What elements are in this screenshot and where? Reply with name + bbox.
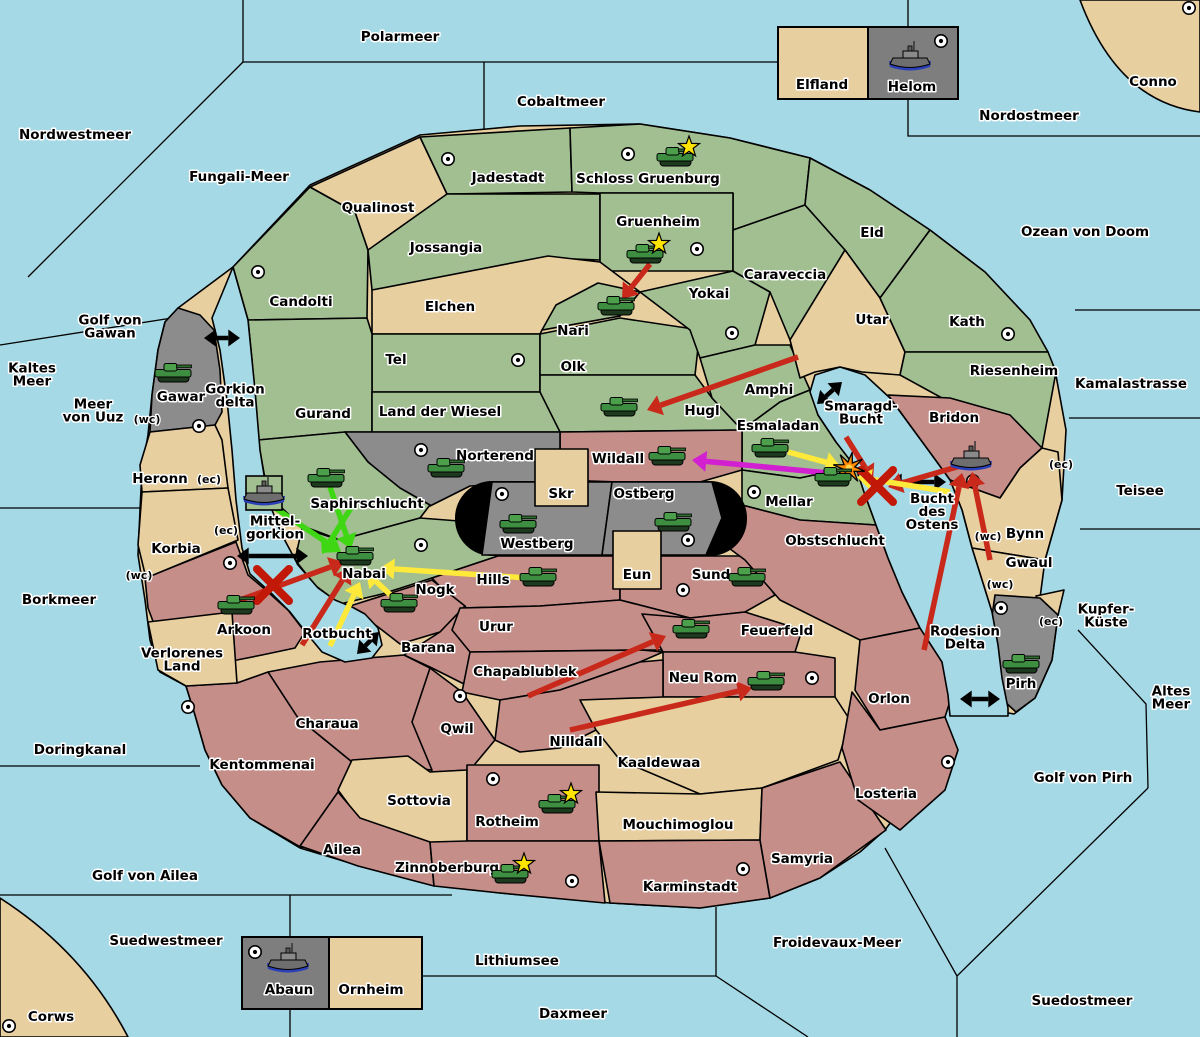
label-riesenheim: Riesenheim (970, 363, 1058, 379)
territory-mouchimoglou[interactable] (596, 788, 762, 841)
label-sea-4: Nordostmeer (979, 108, 1079, 124)
label-urur: Urur (479, 619, 513, 635)
label-norterend: Norterend (456, 448, 534, 464)
label-mellar: Mellar (765, 494, 813, 510)
label-gurand: Gurand (295, 406, 351, 422)
label-sea-6: Meer (13, 374, 52, 390)
label-sea-16: Lithiumsee (475, 953, 559, 969)
supply-center-dot (193, 420, 205, 432)
label-sea-9: delta (215, 395, 254, 411)
label-qwil: Qwil (440, 721, 473, 737)
label-sea-12: Doringkanal (34, 742, 126, 758)
label-sea-7: Gawan (84, 326, 135, 342)
supply-center-dot (512, 354, 524, 366)
label-wildall: Wildall (592, 451, 644, 467)
label-coast-tag: (wc) (975, 530, 1002, 543)
label-coast-tag: (wc) (987, 578, 1014, 591)
supply-center-dot (3, 1020, 15, 1032)
label-sea-14: Suedwestmeer (109, 933, 223, 949)
label-sea-25: Ostens (906, 517, 959, 533)
label-sea-26: Rotbucht (302, 626, 372, 642)
label-candolti: Candolti (269, 294, 332, 310)
supply-center-dot (442, 153, 454, 165)
supply-center-dot (806, 672, 818, 684)
label-ostberg: Ostberg (613, 486, 674, 502)
label-nilldall: Nilldall (549, 734, 602, 750)
supply-center-dot (682, 534, 694, 546)
supply-center-dot (748, 486, 760, 498)
supply-center-dot (566, 875, 578, 887)
label-coast-tag: (ec) (1049, 458, 1073, 471)
supply-center-dot (691, 243, 703, 255)
label-nabai: Nabai (342, 566, 386, 582)
label-eun: Eun (623, 567, 651, 583)
label-bridon: Bridon (929, 410, 979, 426)
label-sea-5: Ozean von Doom (1021, 224, 1149, 240)
label-jadestadt: Jadestadt (471, 170, 545, 186)
label-coast-tag: (ec) (197, 473, 221, 486)
supply-center-dot (737, 863, 749, 875)
supply-center-dot (677, 584, 689, 596)
supply-center-dot (252, 266, 264, 278)
label-abaun: Abaun (265, 982, 313, 998)
map-canvas: PolarmeerNordwestmeerFungali-MeerCobaltm… (0, 0, 1200, 1037)
label-amphi: Amphi (745, 382, 793, 398)
label-yokai: Yokai (688, 286, 730, 302)
label-elchen: Elchen (425, 299, 475, 315)
label-kaaldewaa: Kaaldewaa (618, 755, 701, 771)
label-kath: Kath (949, 314, 985, 330)
label-verlorenes-land: Land (164, 659, 201, 675)
label-sea-20: Meer (1152, 697, 1191, 713)
label-sottovia: Sottovia (387, 793, 451, 809)
label-pirh: Pirh (1006, 676, 1037, 692)
label-jossangia: Jossangia (409, 240, 483, 256)
supply-center-dot (182, 701, 194, 713)
label-sea-18: Suedostmeer (1032, 993, 1133, 1009)
label-nari: Nari (557, 323, 589, 339)
label-esmaladan: Esmaladan (737, 418, 820, 434)
label-sea-8: von Uuz (63, 410, 124, 426)
label-sea-24: Bucht (839, 412, 884, 428)
label-coast-tag: (ec) (1039, 615, 1063, 628)
territory-gruenheim[interactable] (600, 193, 733, 271)
label-neu-rom: Neu Rom (669, 670, 738, 686)
label-schloss-gruenburg: Schloss Gruenburg (576, 171, 720, 187)
label-corws: Corws (28, 1009, 74, 1025)
supply-center-dot (1183, 2, 1195, 14)
label-sea-15: Daxmeer (539, 1006, 607, 1022)
home-box-ornheim[interactable] (329, 937, 422, 1009)
game-map: PolarmeerNordwestmeerFungali-MeerCobaltm… (0, 0, 1200, 1037)
label-kentommenai: Kentommenai (209, 757, 314, 773)
supply-center-dot (415, 539, 427, 551)
supply-center-dot (942, 756, 954, 768)
label-mouchimoglou: Mouchimoglou (622, 817, 733, 833)
label-hills: Hills (476, 572, 509, 588)
label-skr: Skr (548, 486, 574, 502)
label-sea-13: Golf von Ailea (92, 868, 198, 884)
label-sea-19: Golf von Pirh (1034, 770, 1133, 786)
supply-center-dot (995, 602, 1007, 614)
label-charaua: Charaua (295, 716, 358, 732)
label-zinnoberburg: Zinnoberburg (395, 860, 499, 876)
label-nogk: Nogk (415, 582, 455, 598)
label-caraveccia: Caraveccia (744, 267, 826, 283)
label-eld: Eld (860, 225, 884, 241)
label-losteria: Losteria (855, 786, 917, 802)
label-chapablublek: Chapablublek (473, 664, 578, 680)
label-samyria: Samyria (771, 851, 833, 867)
label-rotheim: Rotheim (475, 814, 539, 830)
label-coast-tag: (wc) (126, 569, 153, 582)
label-conno: Conno (1129, 74, 1177, 90)
label-saphirschlucht: Saphirschlucht (310, 496, 424, 512)
label-ornheim: Ornheim (338, 982, 403, 998)
supply-center-dot (454, 690, 466, 702)
label-feuerfeld: Feuerfeld (741, 623, 814, 639)
label-tel: Tel (385, 352, 406, 368)
label-utar: Utar (855, 312, 889, 328)
label-sea-2: Fungali-Meer (189, 169, 289, 185)
label-arkoon: Arkoon (217, 622, 271, 638)
label-sea-22: Teisee (1116, 483, 1164, 499)
label-sea-21: Küste (1084, 615, 1127, 631)
label-heronn: Heronn (132, 471, 188, 487)
label-gruenheim: Gruenheim (616, 214, 700, 230)
label-barana: Barana (401, 640, 455, 656)
label-obstschlucht: Obstschlucht (785, 533, 885, 549)
supply-center-dot (224, 557, 236, 569)
label-sea-10: gorkion (246, 527, 304, 543)
label-westberg: Westberg (500, 536, 573, 552)
supply-center-dot (935, 35, 947, 47)
supply-center-dot (249, 946, 261, 958)
supply-center-dot (1002, 328, 1014, 340)
label-sea-3: Cobaltmeer (517, 94, 605, 110)
label-sea-17: Froidevaux-Meer (773, 935, 901, 951)
supply-center-dot (487, 773, 499, 785)
label-elfland: Elfland (796, 77, 848, 93)
label-sea-27: Delta (945, 637, 986, 653)
supply-center-dot (726, 327, 738, 339)
label-sea-1: Nordwestmeer (19, 127, 131, 143)
label-sea-23: Kamalastrasse (1075, 376, 1187, 392)
label-gwaul: Gwaul (1006, 555, 1053, 571)
label-helom: Helom (888, 79, 936, 95)
label-bynn: Bynn (1006, 526, 1044, 542)
label-gawar: Gawar (157, 389, 206, 405)
supply-center-dot (415, 444, 427, 456)
label-hugl: Hugl (684, 403, 719, 419)
label-qualinost: Qualinost (342, 200, 415, 216)
label-sund: Sund (692, 567, 731, 583)
supply-center-dot (496, 488, 508, 500)
label-olk: Olk (560, 359, 586, 375)
label-ailea: Ailea (323, 842, 361, 858)
label-karminstadt: Karminstadt (643, 879, 738, 895)
supply-center-dot (622, 148, 634, 160)
label-coast-tag: (wc) (134, 413, 161, 426)
label-korbia: Korbia (151, 541, 201, 557)
label-land-der-wiesel: Land der Wiesel (379, 404, 501, 420)
label-sea-0: Polarmeer (361, 29, 440, 45)
label-sea-11: Borkmeer (22, 592, 97, 608)
label-orlon: Orlon (868, 691, 910, 707)
label-coast-tag: (ec) (214, 524, 238, 537)
